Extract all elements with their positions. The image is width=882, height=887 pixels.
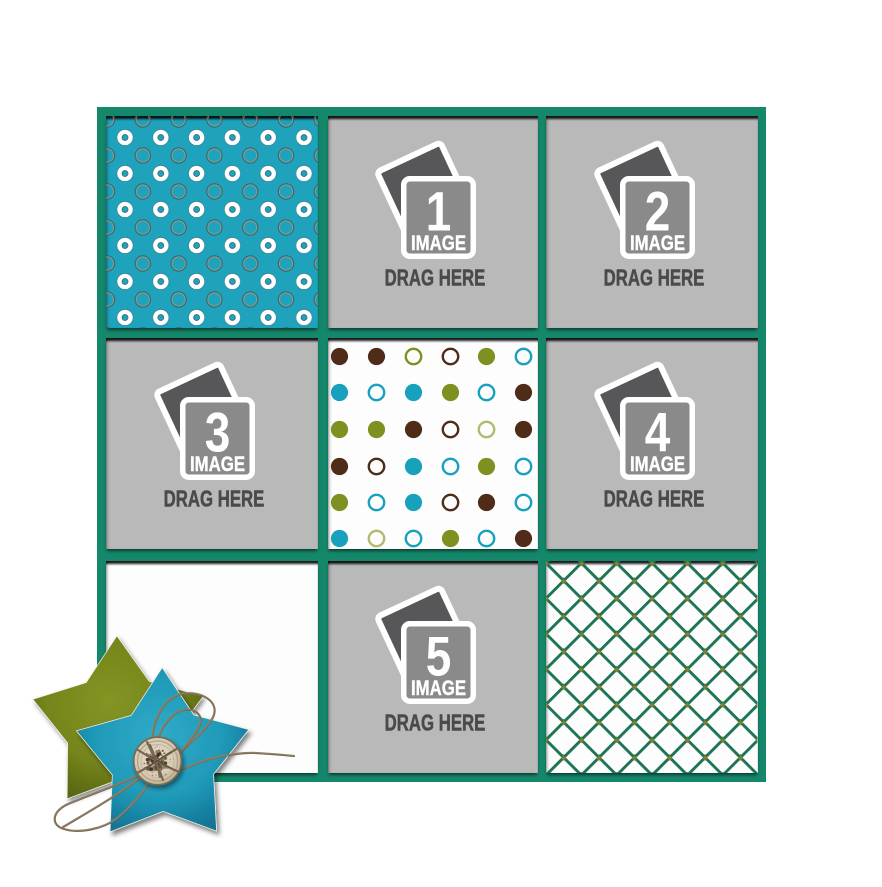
svg-text:DRAG HERE: DRAG HERE [164, 487, 265, 512]
svg-text:DRAG HERE: DRAG HERE [603, 487, 704, 512]
svg-text:DRAG HERE: DRAG HERE [384, 266, 485, 291]
svg-text:DRAG HERE: DRAG HERE [384, 711, 485, 736]
svg-text:IMAGE: IMAGE [190, 454, 245, 477]
svg-text:IMAGE: IMAGE [630, 454, 685, 477]
svg-text:DRAG HERE: DRAG HERE [603, 266, 704, 291]
svg-text:IMAGE: IMAGE [630, 232, 685, 255]
svg-text:IMAGE: IMAGE [410, 232, 465, 255]
svg-text:IMAGE: IMAGE [410, 677, 465, 700]
